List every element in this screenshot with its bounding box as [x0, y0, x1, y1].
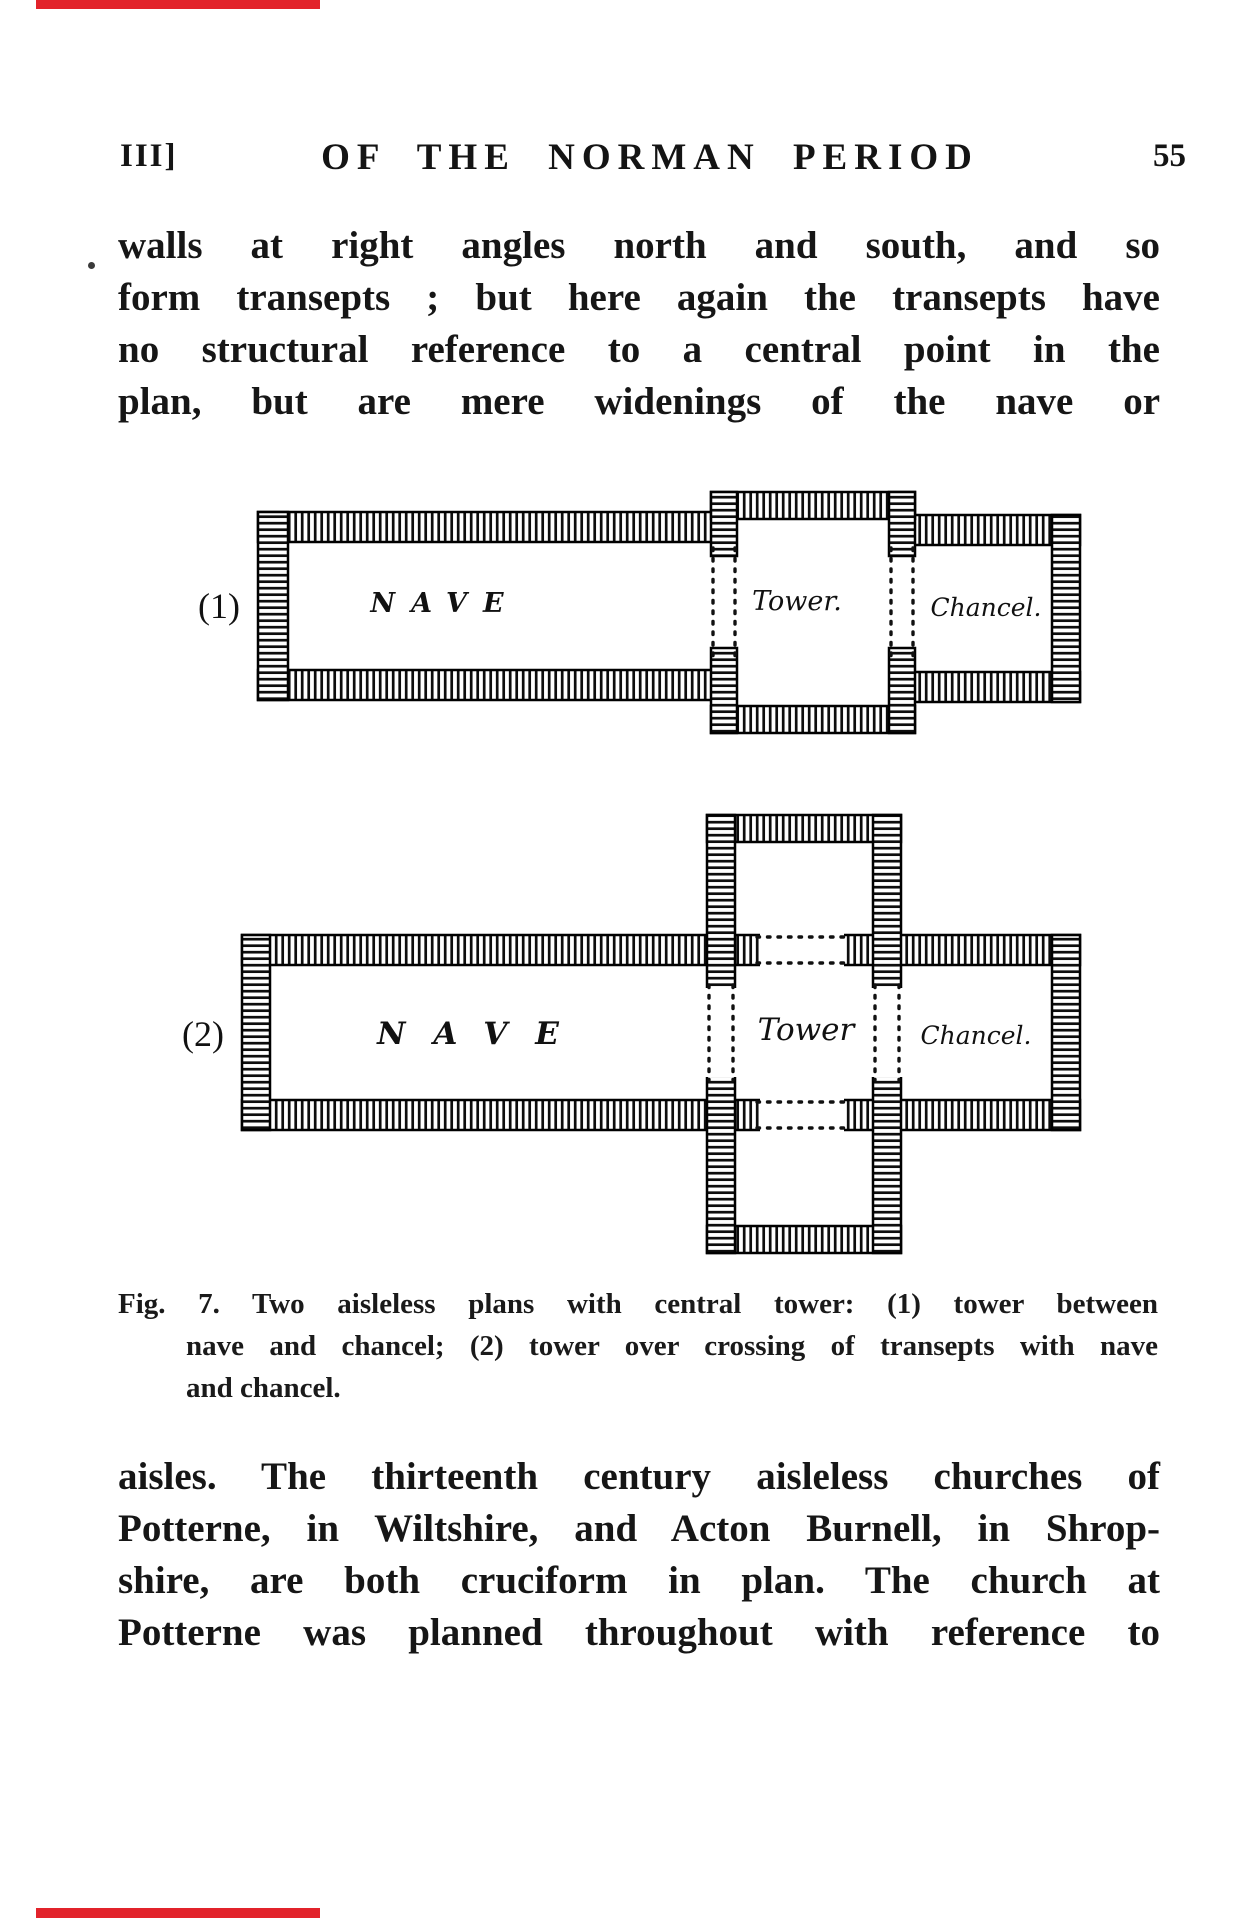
plan1-nave-label: NAVE [369, 588, 519, 619]
plan2-index-label: (2) [182, 1014, 224, 1054]
plan1-tower-west-jamb-top [711, 492, 737, 556]
plan1-nave-north-wall [258, 512, 723, 542]
caption-line: nave and chancel; (2) tower over crossin… [118, 1325, 1158, 1367]
caption-line: Fig. 7. Two aisleless plans with central… [118, 1283, 1158, 1325]
plan2-chancel-label: Chancel. [921, 1021, 1032, 1050]
plan1-index-label: (1) [198, 586, 240, 626]
text-line: Potterne was planned throughout with ref… [118, 1607, 1160, 1659]
plan1-chancel-label: Chancel. [931, 593, 1042, 622]
plan1-nave-west-wall [258, 512, 288, 700]
plan1-tower-west-jamb-bottom [711, 648, 737, 733]
caption-line: and chancel. [118, 1367, 1158, 1409]
text-line: shire, are both cruciform in plan. The c… [118, 1555, 1160, 1607]
figure-caption: Fig. 7. Two aisleless plans with central… [118, 1283, 1158, 1409]
plan1-chancel-east-wall [1052, 515, 1080, 702]
plan1-tower-label: Tower. [752, 586, 842, 617]
plan1-tower-east-jamb-top [889, 492, 915, 556]
plan2-nave-west-wall [242, 935, 270, 1130]
paragraph-bottom: aisles. The thirteenth century aisleless… [118, 1451, 1160, 1659]
plan1-tower-east-jamb-bottom [889, 648, 915, 733]
book-page: III] OF THE NORMAN PERIOD 55 walls at ri… [0, 0, 1250, 1918]
plan2-north-wall [242, 935, 1080, 965]
plan1-tower-north-wall [711, 492, 915, 519]
text-line: Potterne, in Wiltshire, and Acton Burnel… [118, 1503, 1160, 1555]
plan2-chancel-east-wall [1052, 935, 1080, 1130]
plan1-tower-south-wall [711, 706, 915, 733]
plan2-tower-label: Tower [758, 1012, 857, 1048]
text-line: aisles. The thirteenth century aisleless… [118, 1451, 1160, 1503]
plan2-nave-label: NAVE [376, 1016, 587, 1052]
plan2-south-wall [242, 1100, 1080, 1130]
plan1-nave-south-wall [258, 670, 723, 700]
